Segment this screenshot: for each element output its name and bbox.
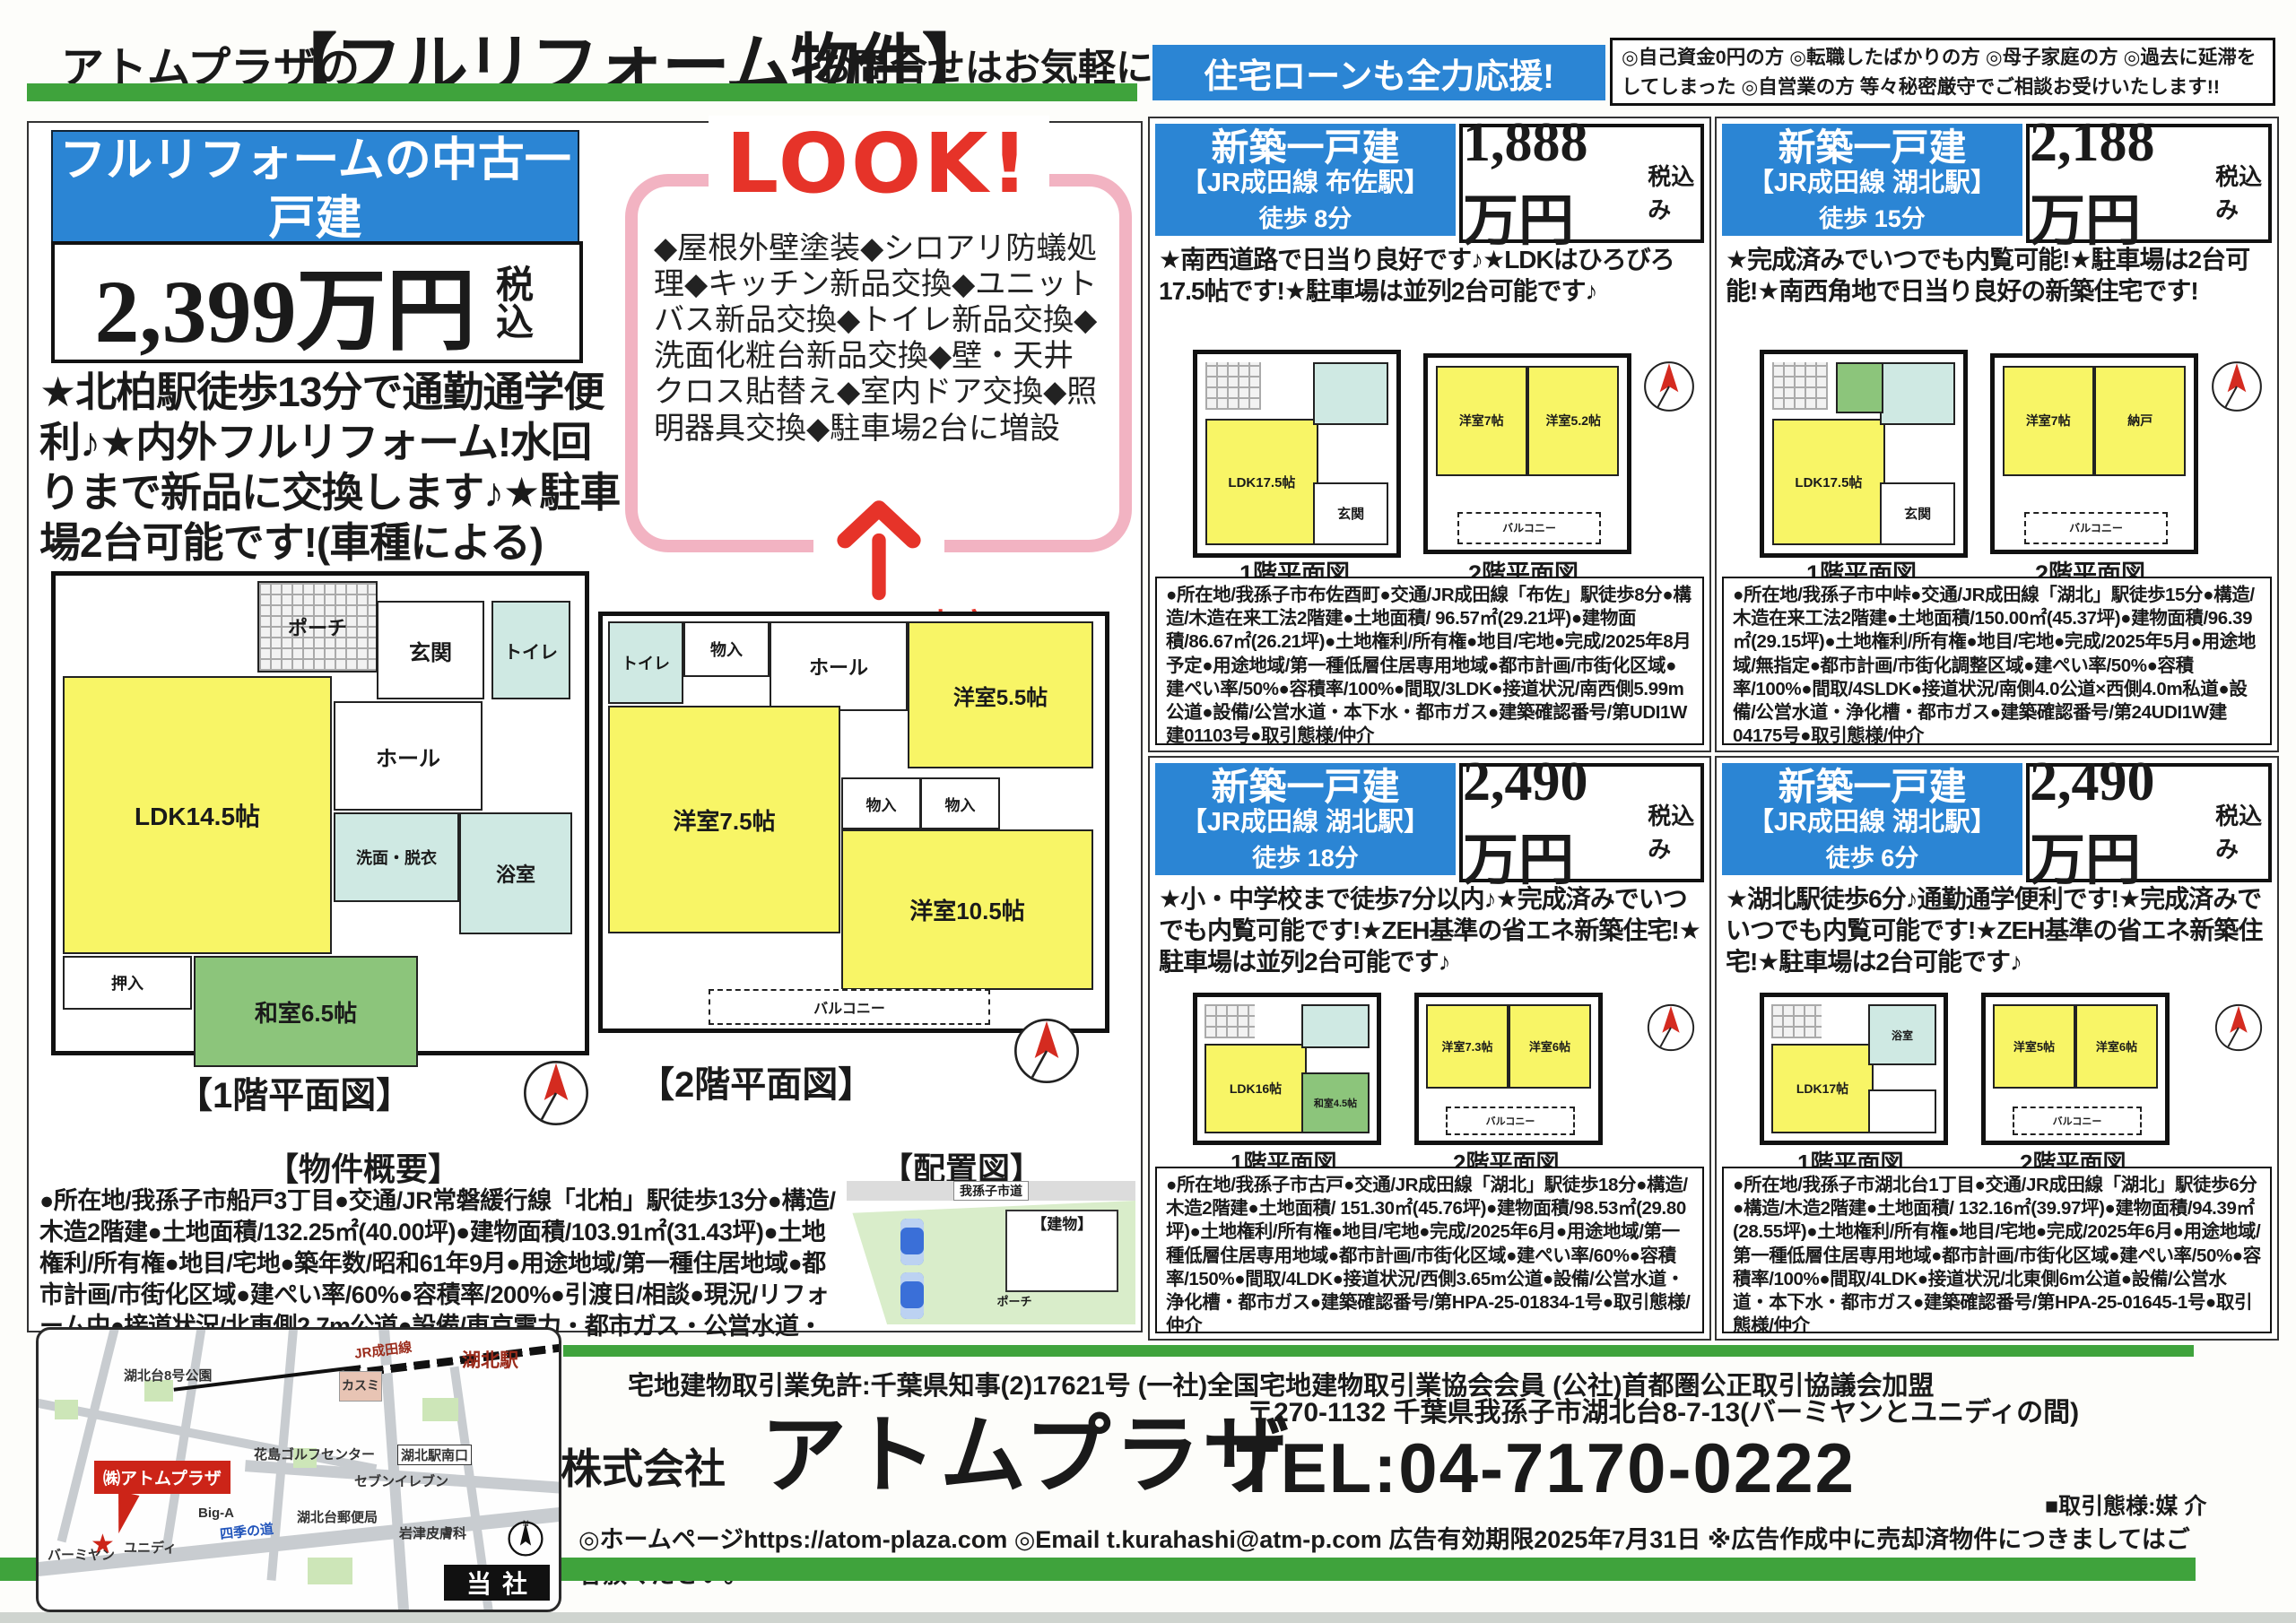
room-wet	[1880, 362, 1955, 426]
floor2-label: 【2階平面図】	[639, 1055, 874, 1107]
up-arrow-icon	[813, 496, 944, 602]
listing-features: ★完成済みでいつでも内覧可能!★駐車場は2台可能!★南西角地で日当り良好の新築住…	[1726, 244, 2268, 307]
listing-floorplan-1f: LDK17.5帖 玄関	[1760, 350, 1968, 558]
stairs-area	[1771, 1004, 1822, 1038]
listing-floorplan-1f: LDK17.5帖 玄関	[1193, 350, 1401, 558]
compass-icon	[1641, 359, 1697, 419]
map-company-badge: 当社	[444, 1565, 550, 1601]
listing-tax: 税込み	[2215, 159, 2268, 225]
map-star-icon: ★	[91, 1529, 115, 1560]
company-address: 〒270-1132 千葉県我孫子市湖北台8-7-13(バーミヤンとユニディの間)	[1247, 1390, 2079, 1429]
main-property-card: フルリフォームの中古一戸建 【JR常磐緩行線 北柏駅 徒歩 13分】 2,399…	[27, 121, 1143, 1332]
map-label-kasumi: カスミ	[342, 1376, 379, 1394]
room-yoshitsu-75: 洋室7.5帖	[608, 706, 840, 933]
listing-header: 新築一戸建 【JR成田線 湖北駅】 徒歩 18分	[1155, 763, 1456, 875]
map-label-biga: Big-A	[198, 1506, 234, 1521]
main-property-title: フルリフォームの中古一戸建	[53, 132, 578, 248]
room-balcony: バルコニー	[1457, 512, 1600, 544]
listing-access: 【JR成田線 布佐駅】	[1155, 169, 1456, 198]
main-price-box: 2,399万円 税込	[51, 241, 583, 363]
room-bed-b: 洋室6帖	[2075, 1004, 2158, 1089]
room-balcony: バルコニー	[1446, 1107, 1575, 1134]
room-entry	[1868, 1089, 1936, 1133]
room-hall-1f: ホール	[334, 701, 483, 811]
siteplan-road-label: 我孫子市道	[953, 1181, 1029, 1201]
map-street	[57, 1327, 123, 1542]
green-divider-top	[27, 83, 1137, 101]
room-washroom: 洗面・脱衣	[334, 812, 459, 902]
room-ldk: LDK14.5帖	[63, 676, 332, 954]
listing-card-kohoku6: 新築一戸建 【JR成田線 湖北駅】 徒歩 6分 2,490万円 税込み ★湖北駅…	[1715, 756, 2279, 1341]
room-balcony: バルコニー	[2013, 1107, 2142, 1134]
listing-price-box: 2,188万円 税込み	[2026, 124, 2272, 243]
look-title: LOOK!	[708, 116, 1048, 212]
map-park-block	[55, 1400, 78, 1419]
listing-header: 新築一戸建 【JR成田線 湖北駅】 徒歩 15分	[1722, 124, 2022, 236]
stairs-area	[1772, 362, 1828, 410]
main-price: 2,399万円	[95, 238, 476, 368]
room-storage-b: 物入	[841, 777, 921, 829]
listing-walk: 徒歩 18分	[1155, 838, 1456, 873]
map-park-block	[422, 1398, 458, 1421]
room-washitsu: 和室6.5帖	[194, 956, 418, 1067]
listing-tax: 税込み	[1648, 798, 1700, 864]
listing-price: 1,888万円	[1463, 111, 1640, 256]
listing-tax: 税込み	[1648, 159, 1700, 225]
listing-features: ★南西道路で日当り良好です♪★LDKはひろびろ17.5帖です!★駐車場は並列2台…	[1159, 244, 1700, 307]
listing-floorplan-2f: 洋室5帖 洋室6帖 バルコニー	[1981, 993, 2170, 1145]
company-name: アトムプラザ	[761, 1385, 1293, 1510]
compass-icon-1f	[520, 1057, 592, 1133]
listing-price: 2,490万円	[1463, 751, 1640, 895]
room-balcony: バルコニー	[709, 989, 990, 1025]
room-washitsu: 和室4.5帖	[1301, 1072, 1370, 1133]
room-toilet-1f: トイレ	[491, 601, 570, 699]
room-main: LDK17.5帖	[1205, 419, 1318, 546]
listing-floorplan-2f: 洋室7帖 洋室5.2帖 バルコニー	[1423, 353, 1631, 554]
look-badge: LOOK! ◆屋根外壁塗装◆シロアリ防蟻処理◆キッチン新品交換◆ユニットバス新品…	[625, 125, 1132, 638]
listing-type: 新築一戸建	[1722, 767, 2022, 808]
room-entry: 玄関	[1313, 482, 1388, 546]
siteplan-road: 我孫子市道	[847, 1181, 1135, 1201]
listing-walk: 徒歩 15分	[1722, 199, 2022, 234]
main-property-header: フルリフォームの中古一戸建 【JR常磐緩行線 北柏駅 徒歩 13分】	[51, 130, 579, 243]
map-label-unidy: ユニディ	[124, 1538, 177, 1557]
loan-banner: 住宅ローンも全力応援!	[1152, 45, 1605, 100]
map-label-golf: 花島ゴルフセンター	[254, 1445, 375, 1463]
look-items: ◆屋根外壁塗装◆シロアリ防蟻処理◆キッチン新品交換◆ユニットバス新品交換◆トイレ…	[654, 230, 1103, 447]
listing-details: ●所在地/我孫子市古戸●交通/JR成田線「湖北」駅徒歩18分●構造/木造2階建●…	[1155, 1167, 1704, 1333]
room-bath: 浴室	[1868, 1004, 1936, 1065]
map-park-block	[308, 1558, 352, 1584]
floor1-label: 【1階平面図】	[177, 1066, 412, 1118]
room-green	[1836, 362, 1883, 413]
stairs-area	[1205, 362, 1261, 410]
room-bed-b: 洋室6帖	[1509, 1004, 1591, 1089]
map-label-railway: JR成田線	[353, 1337, 413, 1363]
room-yoshitsu-55: 洋室5.5帖	[908, 621, 1093, 768]
stairs-area	[1205, 1004, 1255, 1038]
listing-walk: 徒歩 8分	[1155, 199, 1456, 234]
room-bed-a: 洋室7帖	[2003, 366, 2094, 477]
map-label-seveneleven: セブンイレブン	[354, 1471, 448, 1490]
listing-features: ★湖北駅徒歩6分♪通勤通学便利です!★完成済みでいつでも内覧可能です!★ZEH基…	[1726, 883, 2268, 977]
room-balcony: バルコニー	[2024, 512, 2167, 544]
listing-details: ●所在地/我孫子市湖北台1丁目●交通/JR成田線「湖北」駅徒歩6分●構造/木造2…	[1722, 1167, 2272, 1333]
flyer-page: アトムプラザの 【フルリフォーム物件】 お問合せはお気軽に! 住宅ローンも全力応…	[0, 0, 2296, 1623]
compass-icon	[1645, 1002, 1697, 1058]
map-compass-icon: N	[505, 1518, 546, 1564]
room-entry: 玄関	[1880, 482, 1955, 546]
map-north-letter: N	[523, 1519, 529, 1528]
room-main: LDK17.5帖	[1772, 419, 1885, 546]
map-street	[160, 1327, 209, 1562]
main-features: ★北柏駅徒歩13分で通勤通学便利♪★内外フルリフォーム!水回りまで新品に交換しま…	[39, 367, 627, 595]
listing-tax: 税込み	[2215, 798, 2268, 864]
listing-details: ●所在地/我孫子市中峠●交通/JR成田線「湖北」駅徒歩15分●構造/木造在来工法…	[1722, 577, 2272, 745]
listing-header: 新築一戸建 【JR成田線 布佐駅】 徒歩 8分	[1155, 124, 1456, 236]
access-map: 湖北台8号公園 JR成田線 湖北駅 カスミ 花島ゴルフセンター 湖北駅南口 セブ…	[36, 1327, 561, 1612]
map-label-postoffice: 湖北台郵便局	[297, 1507, 378, 1526]
room-entrance: 玄関	[377, 601, 484, 699]
siteplan-building: 【建物】	[1005, 1210, 1118, 1292]
main-floorplan-1f: ポーチ 玄関 トイレ ホール LDK14.5帖 洗面・脱衣 浴室 和室6.5帖 …	[51, 571, 589, 1055]
listing-access: 【JR成田線 湖北駅】	[1722, 808, 2022, 838]
room-main: LDK17帖	[1771, 1044, 1874, 1133]
map-label-clinic: 岩津皮膚科	[399, 1523, 466, 1542]
room-porch: ポーチ	[257, 581, 378, 673]
listing-price: 2,490万円	[2030, 751, 2208, 895]
car-icon-1	[900, 1219, 924, 1265]
room-bath: 浴室	[459, 812, 572, 934]
listing-card-fusa: 新築一戸建 【JR成田線 布佐駅】 徒歩 8分 1,888万円 税込み ★南西道…	[1148, 117, 1711, 752]
room-storage-c: 物入	[920, 777, 1000, 829]
listing-card-kohoku18: 新築一戸建 【JR成田線 湖北駅】 徒歩 18分 2,490万円 税込み ★小・…	[1148, 756, 1711, 1341]
listing-floorplan-1f: LDK16帖 和室4.5帖	[1193, 993, 1381, 1145]
listing-floorplan-2f: 洋室7.3帖 洋室6帖 バルコニー	[1414, 993, 1603, 1145]
listing-card-kohoku15: 新築一戸建 【JR成田線 湖北駅】 徒歩 15分 2,188万円 税込み ★完成…	[1715, 117, 2279, 752]
room-oshiire: 押入	[63, 956, 192, 1010]
compass-icon-2f	[1011, 1015, 1083, 1091]
phone-number: TEL:04-7170-0222	[1236, 1428, 1856, 1509]
listing-floorplan-1f: LDK17帖 浴室	[1760, 993, 1948, 1145]
listing-price: 2,188万円	[2030, 111, 2208, 256]
room-bed-b: 納戸	[2094, 366, 2186, 477]
room-wet	[1301, 1004, 1370, 1048]
listing-features: ★小・中学校まで徒歩7分以内♪★完成済みでいつでも内覧可能です!★ZEH基準の省…	[1159, 883, 1700, 977]
map-label-park: 湖北台8号公園	[124, 1366, 212, 1384]
page-bottom-edge	[0, 1612, 2296, 1623]
listing-floorplan-2f: 洋室7帖 納戸 バルコニー	[1990, 353, 2198, 554]
listing-type: 新築一戸建	[1722, 127, 2022, 169]
listing-access: 【JR成田線 湖北駅】	[1722, 169, 2022, 198]
compass-icon	[2209, 359, 2265, 419]
room-hall-2f: ホール	[770, 621, 908, 711]
map-company-marker: ㈱アトムプラザ	[94, 1461, 230, 1494]
room-bed-b: 洋室5.2帖	[1527, 366, 1619, 477]
car-icon-2	[900, 1272, 924, 1319]
company-prefix: 株式会社	[561, 1436, 726, 1496]
listing-price-box: 2,490万円 税込み	[1459, 763, 1704, 882]
room-main: LDK16帖	[1205, 1044, 1307, 1133]
main-floorplan-2f: トイレ 物入 ホール 洋室5.5帖 洋室7.5帖 物入 物入 洋室10.5帖 バ…	[598, 612, 1109, 1033]
listing-type: 新築一戸建	[1155, 127, 1456, 169]
siteplan-drawing: 我孫子市道 【建物】 ポーチ	[847, 1181, 1135, 1324]
room-bed-a: 洋室7.3帖	[1426, 1004, 1509, 1089]
room-bed-a: 洋室5帖	[1993, 1004, 2075, 1089]
map-label-station: 湖北駅	[462, 1346, 518, 1373]
overview-label: 【物件概要】	[266, 1143, 460, 1190]
siteplan-porch-label: ポーチ	[996, 1292, 1031, 1309]
listing-price-box: 1,888万円 税込み	[1459, 124, 1704, 243]
room-yoshitsu-105: 洋室10.5帖	[841, 829, 1093, 990]
compass-icon	[2213, 1002, 2265, 1058]
listing-access: 【JR成田線 湖北駅】	[1155, 808, 1456, 838]
listing-type: 新築一戸建	[1155, 767, 1456, 808]
listing-details: ●所在地/我孫子市布佐酉町●交通/JR成田線「布佐」駅徒歩8分●構造/木造在来工…	[1155, 577, 1704, 745]
green-divider-footer-top	[563, 1345, 2194, 1357]
listing-price-box: 2,490万円 税込み	[2026, 763, 2272, 882]
room-toilet-2f: トイレ	[608, 621, 683, 704]
room-wet	[1313, 362, 1388, 426]
listing-walk: 徒歩 6分	[1722, 838, 2022, 873]
room-storage-a: 物入	[683, 621, 770, 677]
map-label-south-exit: 湖北駅南口	[397, 1445, 472, 1465]
deal-type: ■取引態様:媒 介	[2045, 1488, 2206, 1521]
loan-conditions: ◎自己資金0円の方 ◎転職したばかりの方 ◎母子家庭の方 ◎過去に延滞をしてしま…	[1610, 38, 2275, 106]
listing-header: 新築一戸建 【JR成田線 湖北駅】 徒歩 6分	[1722, 763, 2022, 875]
room-bed-a: 洋室7帖	[1436, 366, 1527, 477]
main-tax-note: 税込	[485, 265, 540, 340]
